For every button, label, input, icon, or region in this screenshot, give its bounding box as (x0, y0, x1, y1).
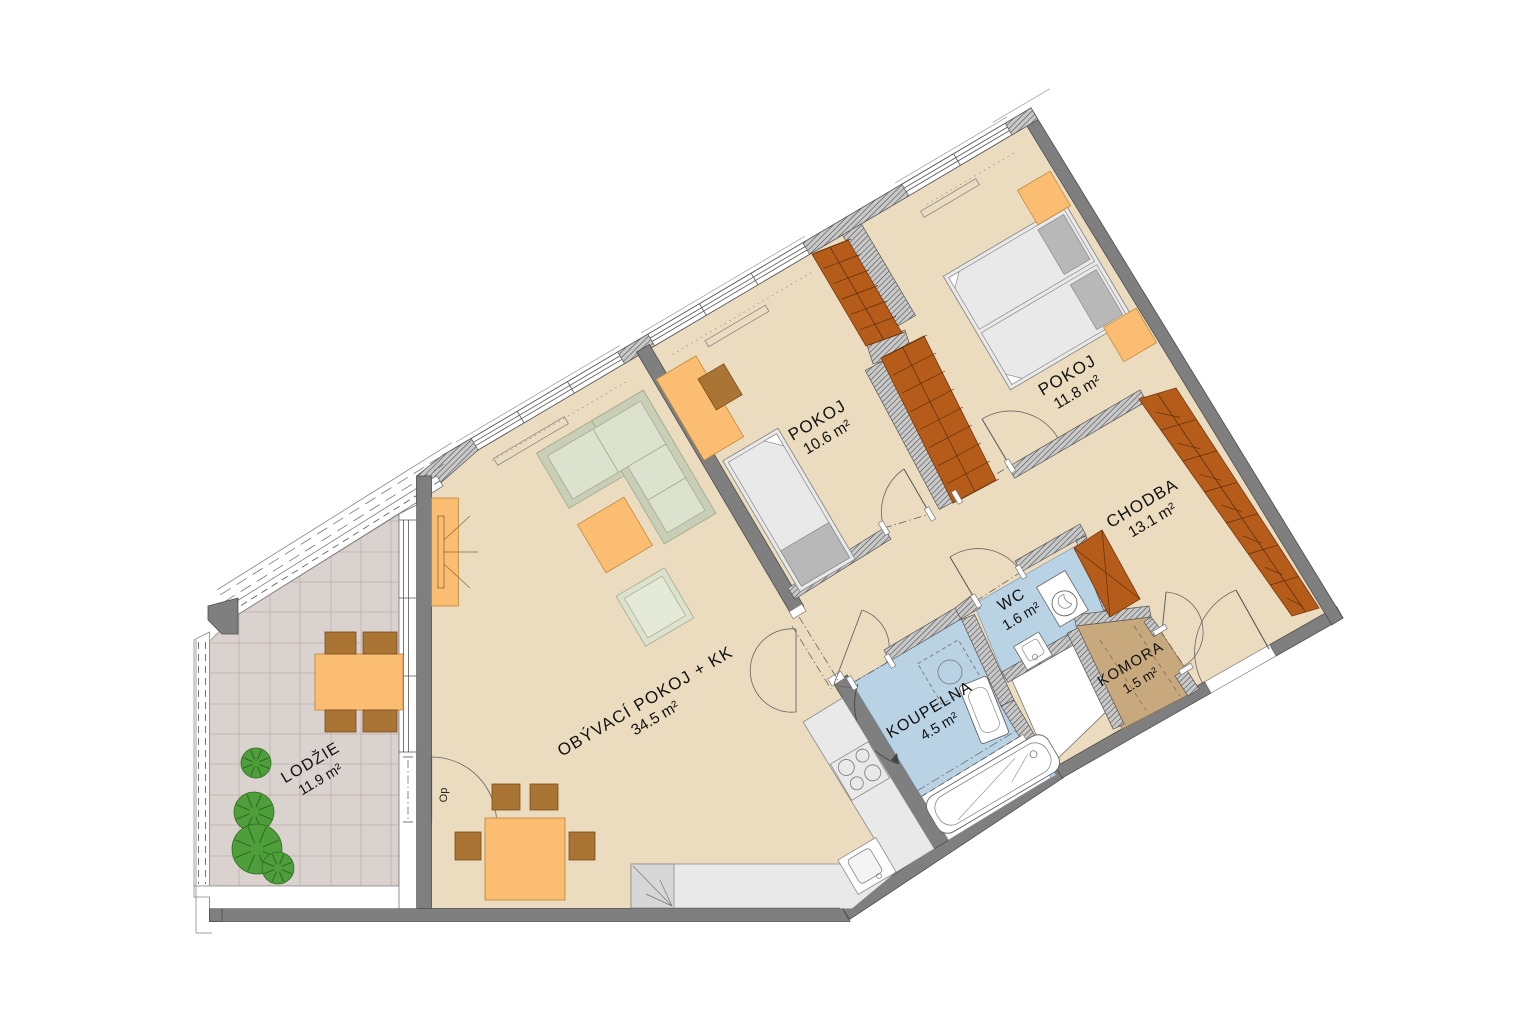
svg-text:Op: Op (438, 788, 450, 803)
